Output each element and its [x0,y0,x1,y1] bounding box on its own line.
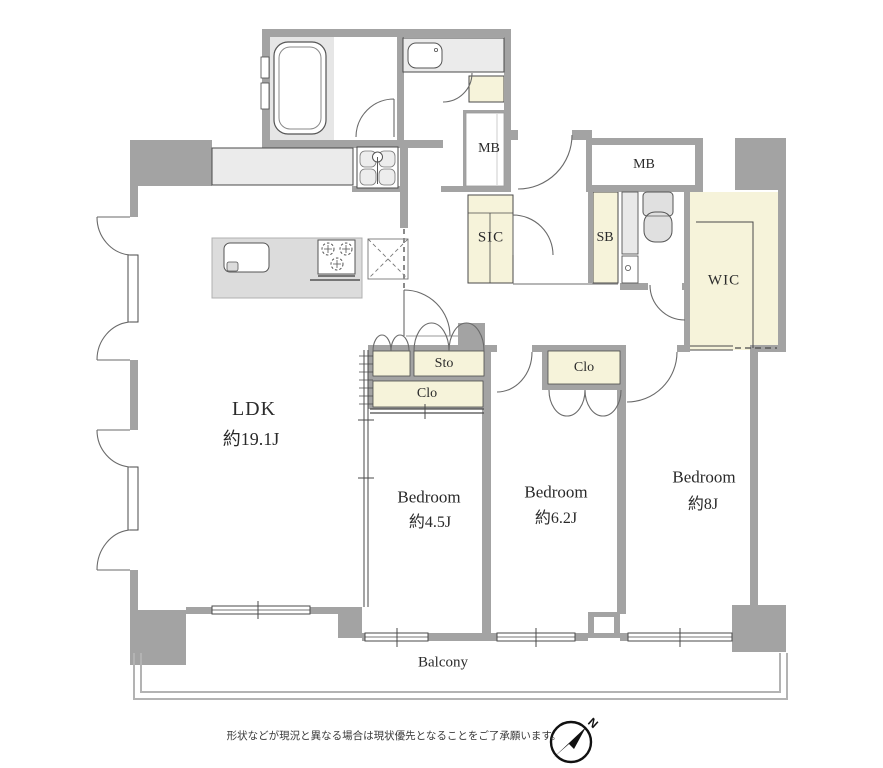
room-size-ldk: 約19.1J [223,430,280,448]
room-label-clo-small: Clo [417,387,437,401]
laundry-pan [357,147,398,188]
disclaimer-text: 形状などが現況と異なる場合は現状優先となることをご了承願います。 [227,731,562,742]
vanity-unit [403,38,504,72]
room-label-balcony: Balcony [418,656,468,671]
room-label-bedroom-large: Bedroom [672,469,735,486]
meter-boxes [466,113,695,186]
room-size-bedroom-small: 約4.5J [409,515,451,531]
wic-room [690,192,778,350]
room-label-sic: SIC [478,231,504,246]
refrigerator-space [368,229,408,292]
room-label-ldk: LDK [232,399,276,419]
toilet-area [622,192,673,283]
windows [128,255,732,641]
room-label-mb-hall: MB [478,142,500,156]
kitchen-counter [212,148,353,185]
kitchen-island [212,238,362,298]
room-label-clo-mid: Clo [574,361,594,375]
wall-notch [594,617,614,633]
storage-block [368,345,490,419]
floor-plan-page: LDK 約19.1J Bedroom 約4.5J Bedroom 約6.2J B… [0,0,883,768]
toilet-cabinet [622,192,638,254]
room-label-wic: WIC [708,274,740,289]
room-label-sb: SB [596,231,613,245]
bathtub [274,42,326,134]
toilet-bowl [644,212,672,242]
linen-box [469,76,504,102]
room-label-sto: Sto [435,357,454,371]
floor-plan-drawing [0,0,883,768]
window-left-1 [128,255,138,322]
room-label-bedroom-small: Bedroom [397,489,460,506]
room-label-mb-right: MB [633,158,655,172]
room-size-bedroom-large: 約8J [688,497,718,513]
bathroom-window-slits [261,57,269,109]
compass-icon [551,722,591,762]
room-label-bedroom-mid: Bedroom [524,484,587,501]
room-size-bedroom-mid: 約6.2J [535,511,577,527]
window-left-2 [128,467,138,530]
